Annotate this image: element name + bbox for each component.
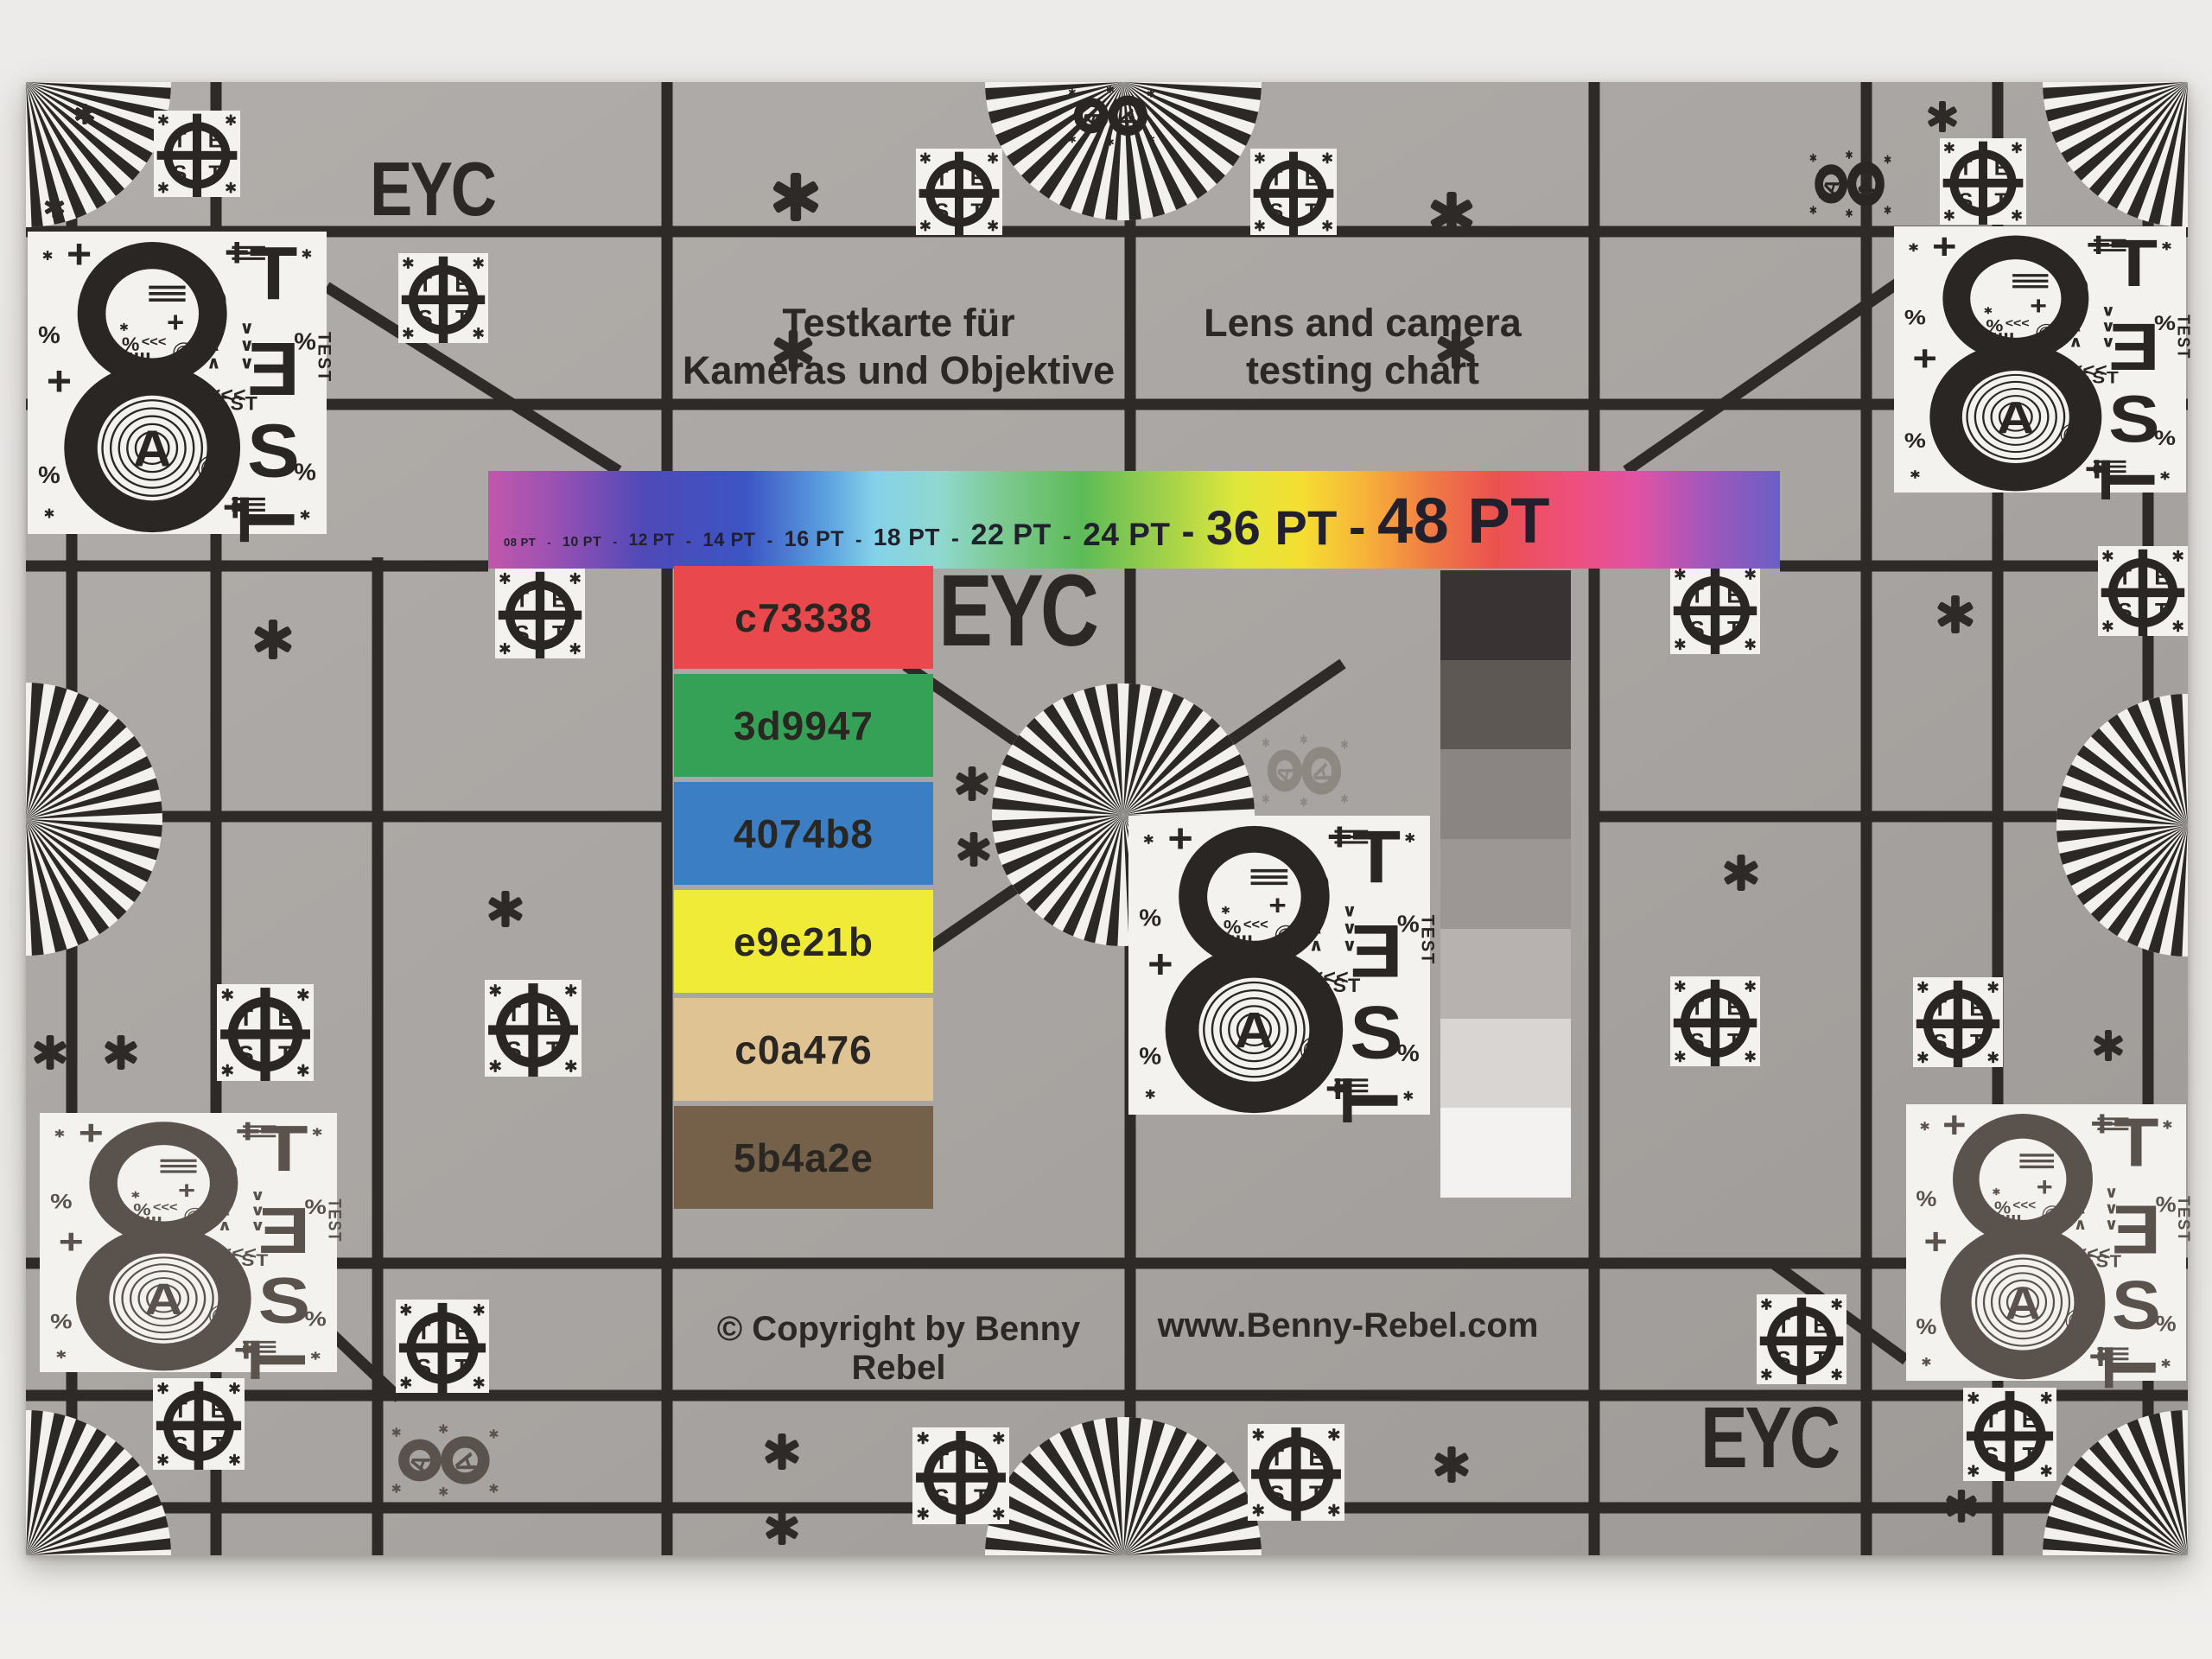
test-circle-badge bbox=[1940, 138, 2026, 225]
color-swatch-5b4a2e: 5b4a2e bbox=[674, 1106, 933, 1209]
color-swatch-3d9947: 3d9947 bbox=[674, 674, 933, 777]
pt-separator: - bbox=[547, 538, 551, 548]
test-circle-badge bbox=[217, 984, 314, 1081]
title-german-line2: Kameras und Objektive bbox=[678, 346, 1119, 394]
title-english-line2: testing chart bbox=[1142, 346, 1583, 394]
website-text: www.Benny-Rebel.com bbox=[1149, 1306, 1547, 1345]
test-circle-badge bbox=[1913, 977, 2003, 1067]
font-size-rainbow-bar: 08 PT-10 PT-12 PT-14 PT-16 PT-18 PT-22 P… bbox=[488, 471, 1780, 569]
test-circle-badge bbox=[495, 569, 585, 658]
title-german: Testkarte für Kameras und Objektive bbox=[678, 299, 1119, 394]
pt-separator: - bbox=[767, 534, 773, 548]
test-circle-badge bbox=[154, 111, 240, 197]
color-swatch-4074b8: 4074b8 bbox=[674, 782, 933, 885]
pt-size-label: 14 PT bbox=[702, 532, 755, 548]
pt-separator: - bbox=[951, 529, 960, 548]
grayscale-step-4 bbox=[1440, 839, 1571, 929]
pt-size-label: 08 PT bbox=[504, 538, 536, 548]
test-patch-top-right bbox=[1894, 225, 2193, 500]
test-circle-badge bbox=[1670, 976, 1760, 1066]
test-patch-center bbox=[1128, 814, 1438, 1123]
color-swatch-column: c733383d99474074b8e9e21bc0a4765b4a2e bbox=[674, 566, 933, 1209]
copyright-text: © Copyright by Benny Rebel bbox=[678, 1310, 1119, 1388]
grayscale-step-7 bbox=[1440, 1108, 1571, 1198]
pt-size-label: 16 PT bbox=[785, 531, 844, 549]
grayscale-step-5 bbox=[1440, 929, 1571, 1019]
chart-card-artwork: TESTAA+%<<<+A<<<TESTTESTTEST∧∨∧∨∧∨++++%%… bbox=[0, 0, 2212, 1659]
pt-size-label: 18 PT bbox=[874, 528, 940, 548]
test-circle-badge bbox=[1670, 564, 1760, 654]
test-chart-photo: TESTAA+%<<<+A<<<TESTTESTTEST∧∨∧∨∧∨++++%%… bbox=[0, 0, 2212, 1659]
pt-separator: - bbox=[1181, 516, 1195, 548]
pt-size-label: 10 PT bbox=[563, 537, 601, 548]
pt-size-label: 48 PT bbox=[1377, 495, 1550, 548]
test-circle-badge bbox=[485, 980, 582, 1077]
test-circle-badge bbox=[1963, 1388, 2056, 1481]
color-swatch-c0a476: c0a476 bbox=[674, 998, 933, 1101]
test-circle-badge bbox=[398, 253, 488, 343]
eyc-label-top-left: EYC bbox=[370, 151, 494, 227]
test-circle-badge bbox=[2098, 546, 2188, 636]
grayscale-step-wedge bbox=[1440, 570, 1571, 1198]
color-swatch-e9e21b: e9e21b bbox=[674, 890, 933, 993]
eyc-label-center: EYC bbox=[938, 560, 1096, 662]
test-patch-top-left bbox=[28, 230, 334, 543]
test-circle-badge bbox=[1248, 1424, 1344, 1521]
title-english-line1: Lens and camera bbox=[1142, 299, 1583, 346]
test-circle-badge bbox=[153, 1378, 245, 1470]
test-circle-badge bbox=[912, 1427, 1009, 1524]
pt-separator: - bbox=[1063, 526, 1072, 548]
pt-size-label: 22 PT bbox=[971, 524, 1052, 548]
pt-size-label: 12 PT bbox=[629, 534, 675, 548]
pt-size-label: 36 PT bbox=[1206, 508, 1338, 548]
pt-separator: - bbox=[686, 535, 692, 548]
pt-size-label: 24 PT bbox=[1083, 522, 1170, 548]
pt-separator: - bbox=[1349, 506, 1366, 548]
grayscale-step-1 bbox=[1440, 570, 1571, 660]
title-english: Lens and camera testing chart bbox=[1142, 299, 1583, 394]
test-circle-badge bbox=[1757, 1294, 1847, 1384]
title-german-line1: Testkarte für bbox=[678, 299, 1119, 346]
grayscale-step-2 bbox=[1440, 660, 1571, 750]
eyc-label-bottom-right: EYC bbox=[1700, 1395, 1838, 1481]
test-circle-badge bbox=[1250, 149, 1337, 235]
test-patch-bottom-right bbox=[1906, 1102, 2193, 1389]
pt-separator: - bbox=[855, 532, 862, 548]
color-swatch-c73338: c73338 bbox=[674, 566, 933, 669]
test-patch-bottom-left bbox=[40, 1111, 344, 1380]
pt-separator: - bbox=[613, 537, 618, 548]
test-circle-badge bbox=[916, 149, 1002, 235]
grayscale-step-3 bbox=[1440, 749, 1571, 839]
test-circle-badge bbox=[396, 1300, 489, 1393]
grayscale-step-6 bbox=[1440, 1019, 1571, 1109]
